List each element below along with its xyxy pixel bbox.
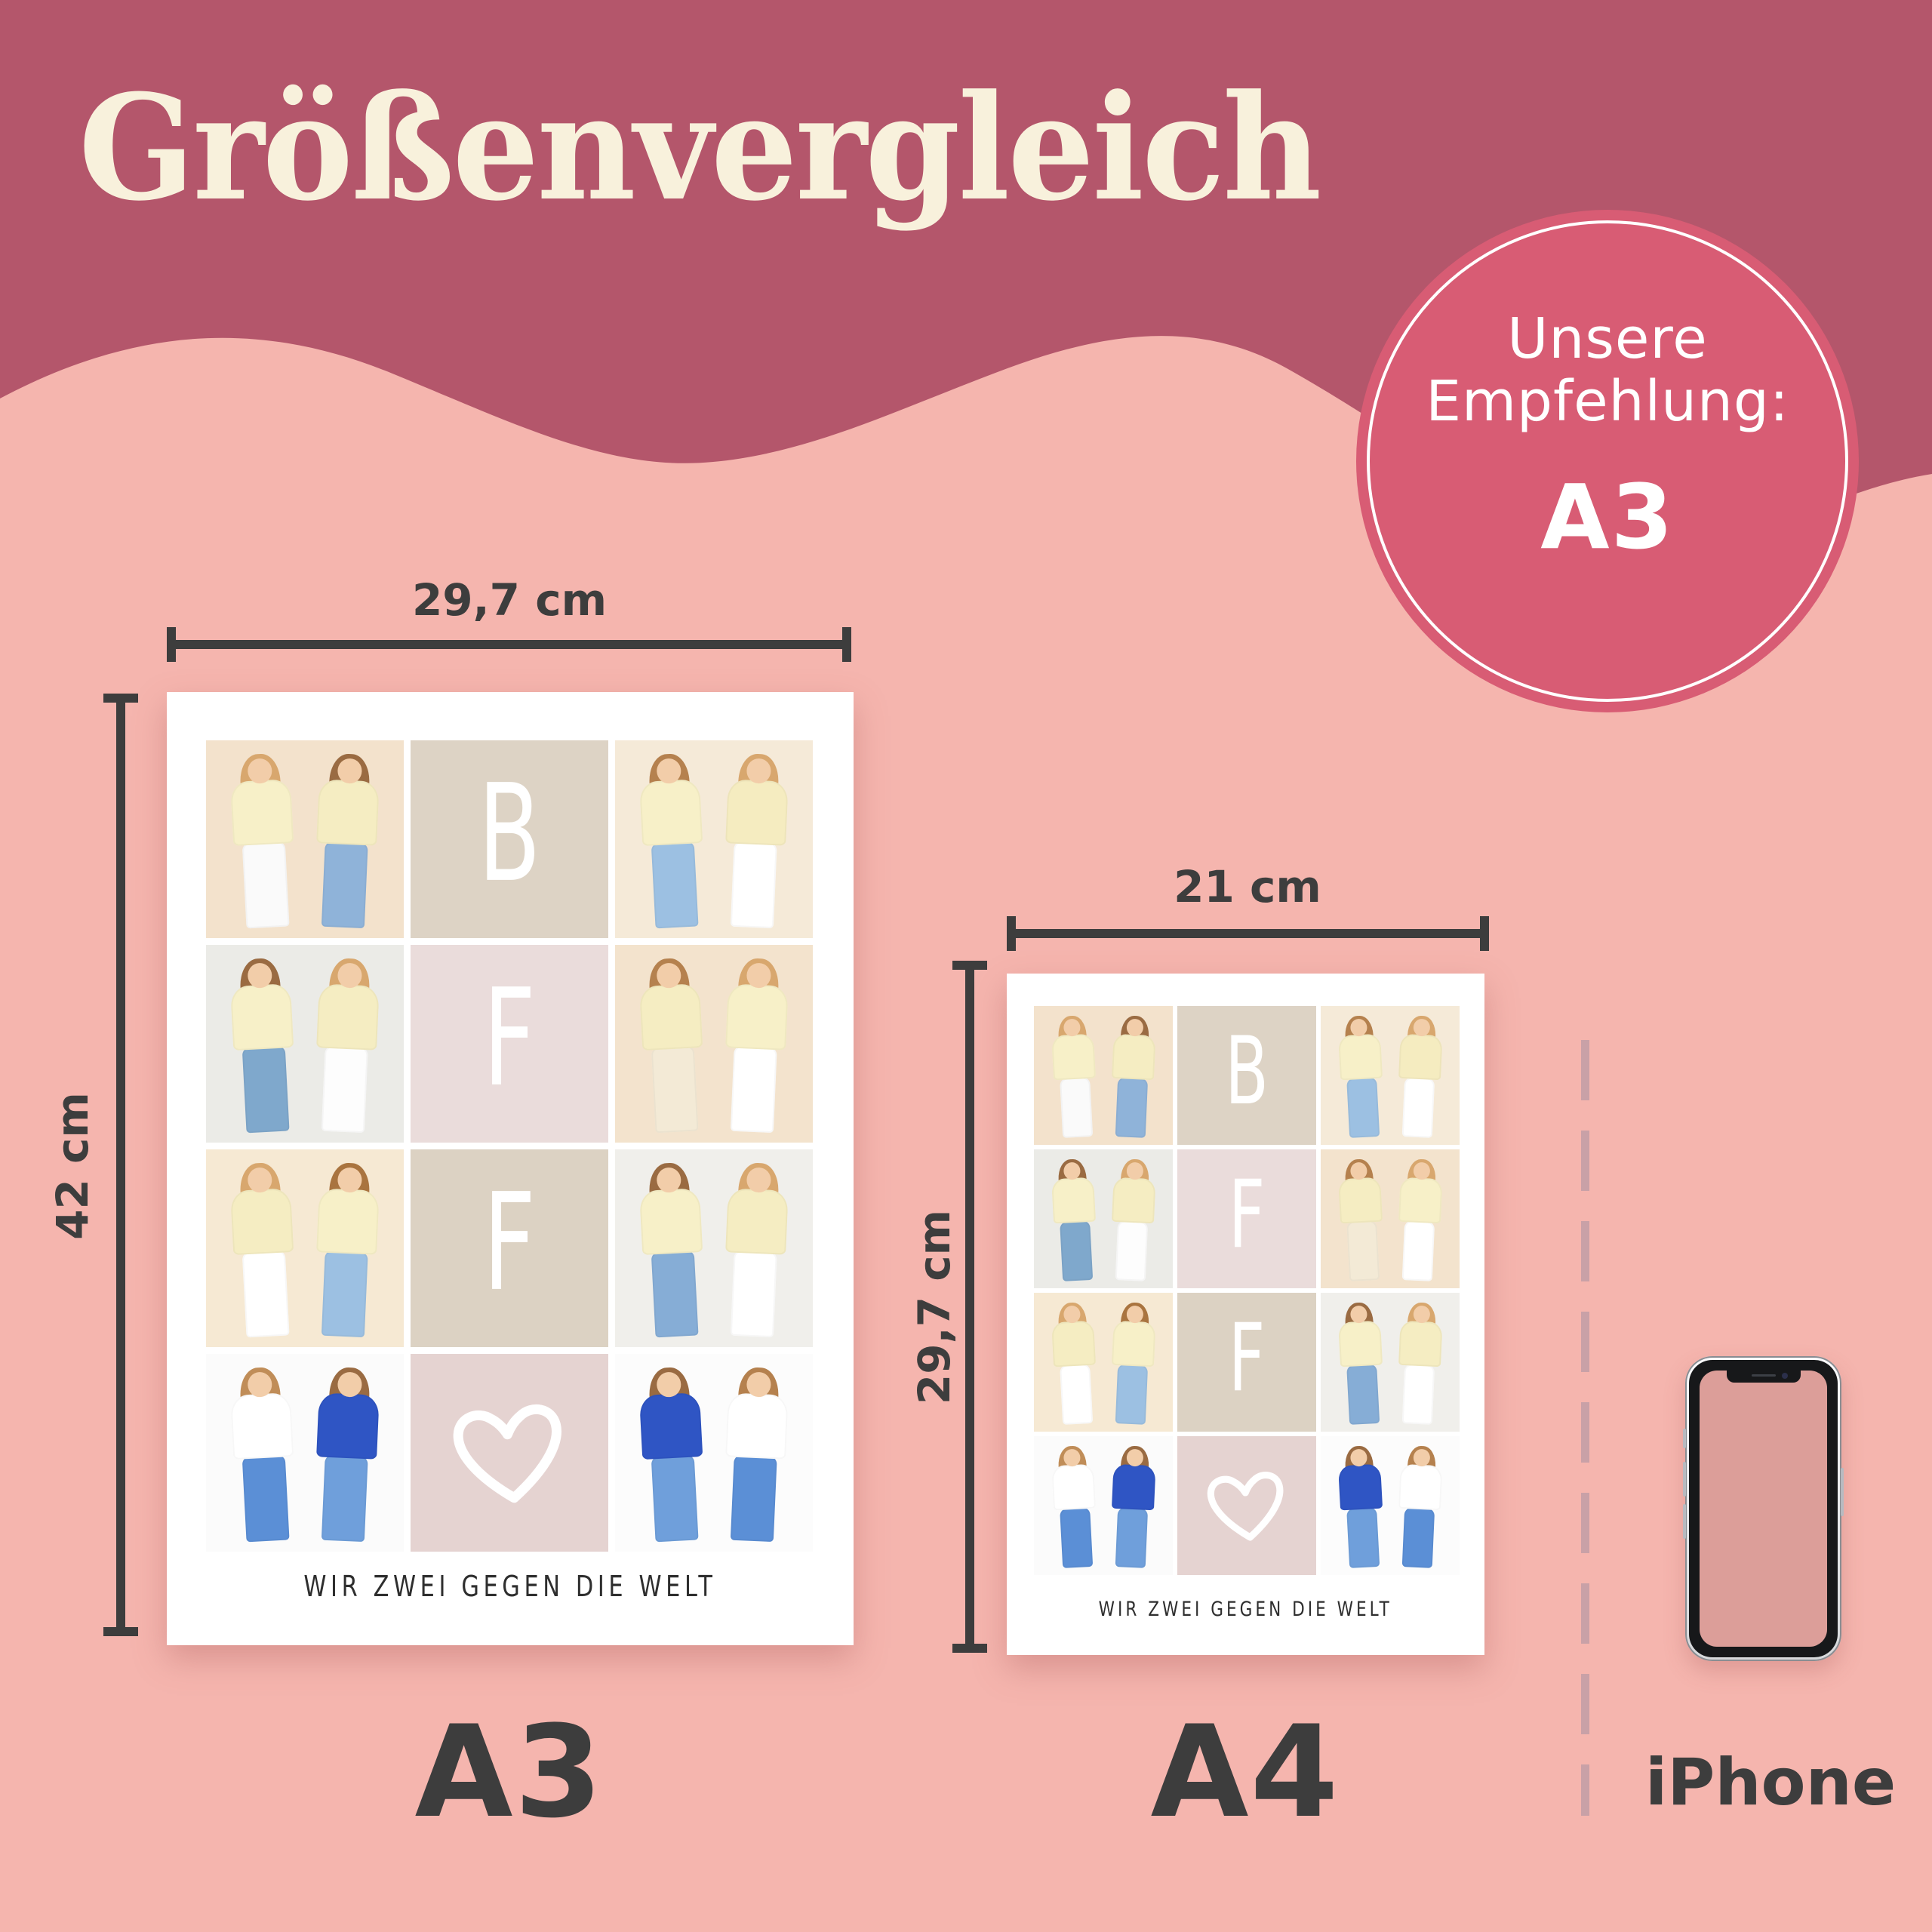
- collage-letter: F: [1229, 1312, 1266, 1405]
- a3-width-label: 29,7 cm: [412, 574, 607, 626]
- photo-figure: [303, 1161, 390, 1343]
- photo-figure: [219, 1161, 307, 1343]
- collage-letter: B: [1225, 1025, 1269, 1118]
- photo-figure: [1102, 1444, 1163, 1572]
- photo-figure: [219, 752, 307, 934]
- collage-photo: [206, 1354, 404, 1552]
- badge-recommended-size: A3: [1540, 465, 1674, 569]
- collage-photo: [615, 740, 813, 938]
- photo-figure: [1330, 1301, 1392, 1429]
- photo-figure: [1389, 1014, 1450, 1142]
- volume-down-button: [1683, 1504, 1686, 1539]
- photo-figure: [1102, 1158, 1163, 1285]
- collage-photo: [206, 1149, 404, 1347]
- poster-a3: BFF WIR ZWEI GEGEN DIE WELT: [167, 692, 854, 1645]
- badge-line1: Unsere: [1507, 308, 1707, 371]
- photo-figure: [628, 1161, 716, 1343]
- collage-letter: B: [478, 767, 540, 901]
- collage-letter: F: [483, 971, 536, 1106]
- iphone-screen: [1700, 1371, 1827, 1647]
- a4-height-label: 29,7 cm: [909, 1210, 960, 1404]
- collage-letter: F: [483, 1176, 536, 1310]
- photo-figure: [628, 957, 716, 1139]
- photo-figure: [219, 957, 307, 1139]
- collage-photo: [615, 945, 813, 1143]
- photo-figure: [1389, 1158, 1450, 1285]
- iphone-label: iPhone: [1645, 1745, 1896, 1820]
- collage-letter-tile: F: [411, 945, 608, 1143]
- collage-photo: [206, 740, 404, 938]
- collage-heart-tile: [1177, 1436, 1316, 1575]
- size-label-a4: A4: [1151, 1698, 1340, 1846]
- photo-figure: [628, 1366, 716, 1548]
- size-label-a3: A3: [415, 1698, 605, 1846]
- photo-figure: [303, 957, 390, 1138]
- badge-text: Unsere Empfehlung: A3: [1426, 308, 1789, 569]
- collage-photo: [615, 1149, 813, 1347]
- collage-photo: [615, 1354, 813, 1552]
- photo-figure: [712, 957, 799, 1138]
- collage-letter-tile: B: [411, 740, 608, 938]
- photo-figure: [628, 752, 716, 934]
- photo-figure: [712, 1161, 799, 1343]
- photo-figure: [1330, 1444, 1392, 1572]
- collage-photo: [1034, 1149, 1173, 1288]
- a4-height-dimension-line: [965, 961, 974, 1653]
- collage-photo: [1321, 1149, 1460, 1288]
- photo-figure: [712, 1366, 799, 1547]
- photo-figure: [1102, 1014, 1163, 1142]
- recommendation-badge: Unsere Empfehlung: A3: [1356, 210, 1859, 712]
- photo-figure: [712, 752, 799, 934]
- volume-up-button: [1683, 1462, 1686, 1497]
- a4-width-dimension-line: [1007, 929, 1489, 938]
- power-button: [1841, 1468, 1844, 1516]
- collage-photo: [1321, 1293, 1460, 1432]
- photo-figure: [303, 752, 390, 934]
- photo-figure: [219, 1366, 307, 1548]
- collage-photo: [1034, 1006, 1173, 1145]
- collage-photo: [1034, 1436, 1173, 1575]
- collage-letter-tile: F: [1177, 1293, 1316, 1432]
- badge-line2: Empfehlung:: [1426, 371, 1789, 433]
- photo-figure: [1330, 1158, 1392, 1285]
- poster-caption: WIR ZWEI GEGEN DIE WELT: [167, 1570, 854, 1603]
- collage-letter-tile: F: [411, 1149, 608, 1347]
- collage-grid: BFF: [1007, 974, 1484, 1575]
- a3-width-dimension-line: [167, 640, 851, 649]
- poster-caption: WIR ZWEI GEGEN DIE WELT: [1007, 1598, 1484, 1621]
- photo-figure: [1043, 1301, 1105, 1429]
- collage-heart-tile: [411, 1354, 608, 1552]
- photo-figure: [1330, 1014, 1392, 1142]
- iphone-notch: [1727, 1371, 1801, 1383]
- size-comparison-infographic: Größenvergleich Unsere Empfehlung: A3 29…: [0, 0, 1932, 1932]
- collage-grid: BFF: [167, 692, 854, 1552]
- a3-height-label: 42 cm: [47, 1092, 98, 1240]
- photo-figure: [1043, 1014, 1105, 1142]
- photo-figure: [1389, 1444, 1450, 1572]
- heart-icon: [443, 1392, 577, 1515]
- a4-width-label: 21 cm: [1174, 861, 1321, 912]
- photo-figure: [1043, 1444, 1105, 1572]
- collage-photo: [1034, 1293, 1173, 1432]
- speaker-slit: [1752, 1374, 1776, 1377]
- poster-a4: BFF WIR ZWEI GEGEN DIE WELT: [1007, 974, 1484, 1655]
- collage-letter: F: [1229, 1168, 1266, 1262]
- page-title: Größenvergleich: [78, 72, 1320, 225]
- photo-figure: [1102, 1301, 1163, 1429]
- photo-figure: [1043, 1158, 1105, 1285]
- separator-dashed-line: [1581, 1040, 1589, 1816]
- silence-switch: [1683, 1429, 1686, 1448]
- iphone-mockup: [1685, 1356, 1841, 1661]
- photo-figure: [303, 1366, 390, 1547]
- collage-photo: [1321, 1436, 1460, 1575]
- heart-icon: [1200, 1463, 1294, 1549]
- collage-photo: [206, 945, 404, 1143]
- a3-height-dimension-line: [116, 694, 125, 1636]
- camera-dot: [1782, 1373, 1788, 1379]
- photo-figure: [1389, 1301, 1450, 1429]
- collage-letter-tile: F: [1177, 1149, 1316, 1288]
- collage-letter-tile: B: [1177, 1006, 1316, 1145]
- iphone-bezel: [1689, 1360, 1838, 1657]
- collage-photo: [1321, 1006, 1460, 1145]
